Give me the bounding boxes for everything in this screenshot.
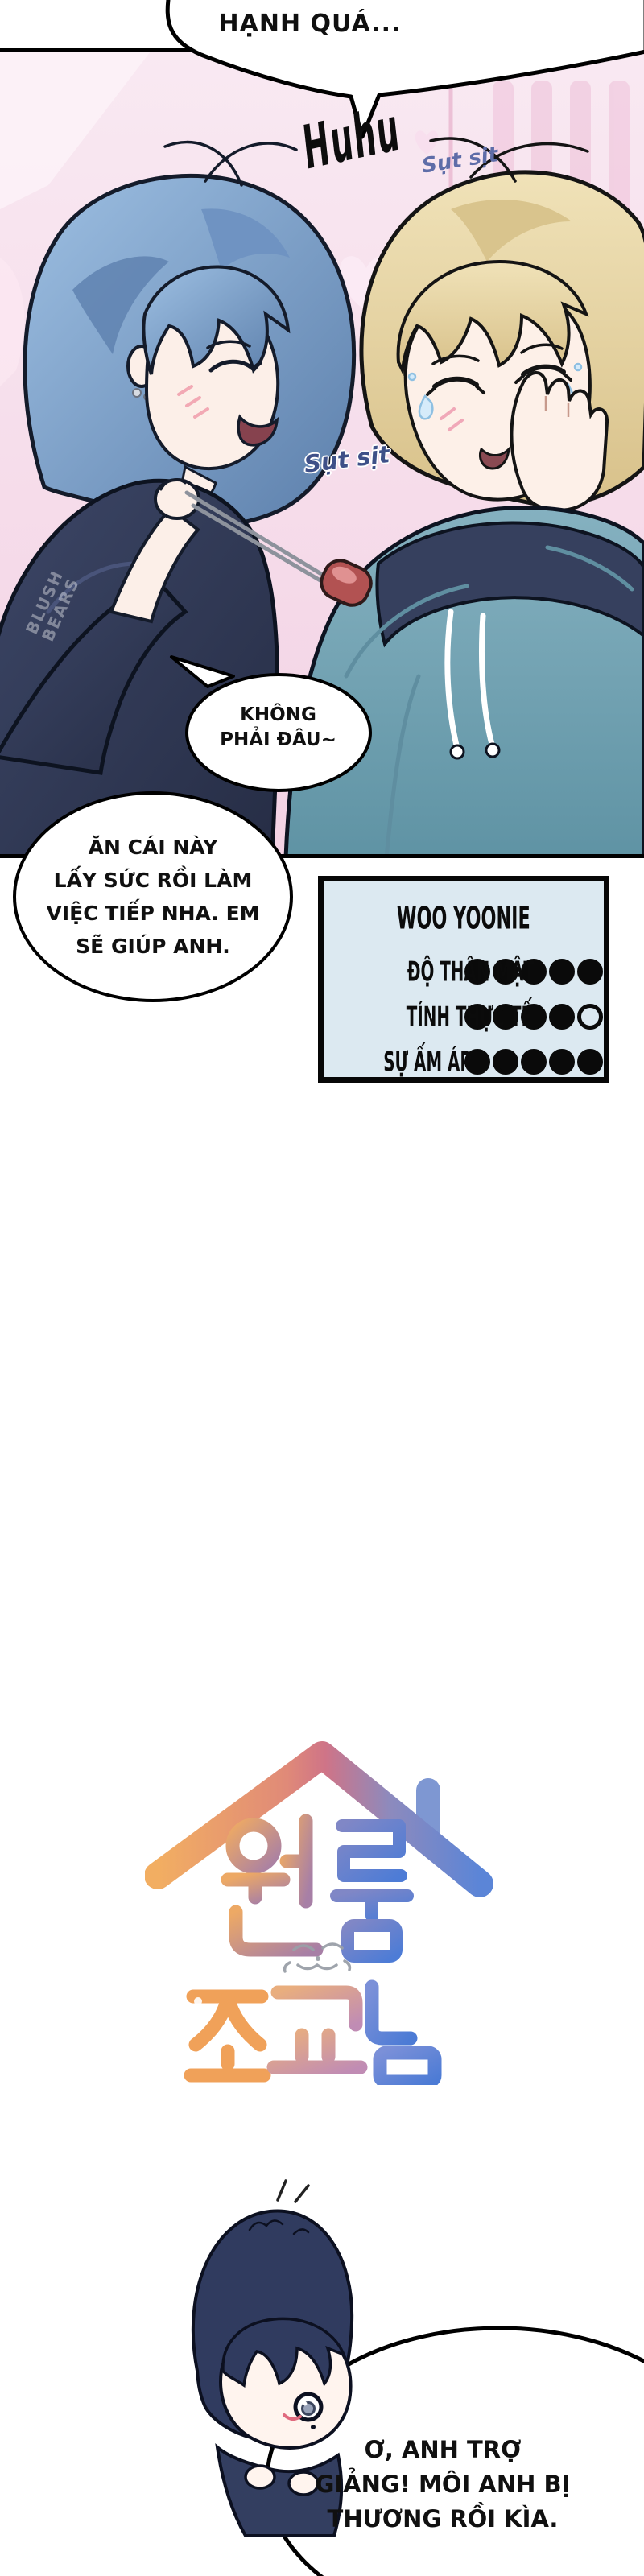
logo-hangul-won [228,1821,316,1950]
logo-shine [194,1997,202,2005]
top-bubble-text: HẠNH QUÁ... [189,10,431,38]
bottom-bubble-line: Ơ, ANH TRỢ [282,2433,604,2467]
big-bubble-line: ĂN CÁI NÀY [46,831,259,864]
bottom-bubble-line: GIẢNG! MÔI ANH BỊ [282,2467,604,2502]
stat-dot-filled [549,1049,575,1075]
stat-label: ĐỘ THÂN MẬT [329,956,458,987]
logo-hangul-room [336,1826,407,1956]
logo-shine [424,1986,432,1994]
logo-hangul-gyo [274,1992,361,2067]
comic-page: BLUSH BEARS HẠNH QUÁ... Huhu Sụt sịt Sụt… [0,0,644,2576]
stat-label: SỰ ẤM ÁP [329,1046,458,1077]
bottom-bubble-text: Ơ, ANH TRỢ GIẢNG! MÔI ANH BỊ THƯƠNG RỒI … [282,2433,604,2537]
hand-holding-chopsticks [155,480,199,518]
stat-dot-filled [577,959,603,985]
small-bubble-text: KHÔNG PHẢI ĐÂU~ [196,703,361,753]
small-bubble-line: PHẢI ĐÂU~ [196,728,361,753]
stat-dot-filled [493,1049,518,1075]
stat-row: ĐỘ THÂN MẬT [324,956,604,988]
stat-label: TÍNH THỰC TẾ [329,1001,458,1032]
stat-row: SỰ ẤM ÁP [324,1046,604,1078]
stat-row: TÍNH THỰC TẾ [324,1001,604,1033]
character-stats-card: WOO YOONIE ĐỘ THÂN MẬT TÍNH THỰC TẾ SỰ Ấ… [318,876,609,1083]
stat-dot-filled [577,1049,603,1075]
logo-hangul-nim [372,1982,435,2082]
stat-dot-filled [521,1049,547,1075]
surprise-marks [278,2181,308,2202]
big-bubble-line: SẼ GIÚP ANH. [46,930,259,963]
stat-dot-filled [549,959,575,985]
small-bubble-line: KHÔNG [196,703,361,728]
big-bubble-line: VIỆC TIẾP NHA. EM [46,897,259,930]
stat-dot-filled [549,1004,575,1030]
series-logo: 조교님 [145,1731,499,2085]
chibi-mole [311,2425,316,2429]
earring [133,389,141,397]
bottom-bubble-line: THƯƠNG RỒI KÌA. [282,2502,604,2537]
big-bubble-text: ĂN CÁI NÀY LẤY SỨC RỒI LÀM VIỆC TIẾP NHA… [46,831,259,963]
chibi-hand [246,2466,275,2488]
big-speech-bubble: ĂN CÁI NÀY LẤY SỨC RỒI LÀM VIỆC TIẾP NHA… [13,791,293,1002]
big-bubble-line: LẤY SỨC RỒI LÀM [46,864,259,897]
stats-card-title: WOO YOONIE [324,902,604,936]
stat-dots [464,1049,603,1075]
stat-dot-empty [577,1004,603,1030]
logo-hangul-jo [191,1996,264,2075]
